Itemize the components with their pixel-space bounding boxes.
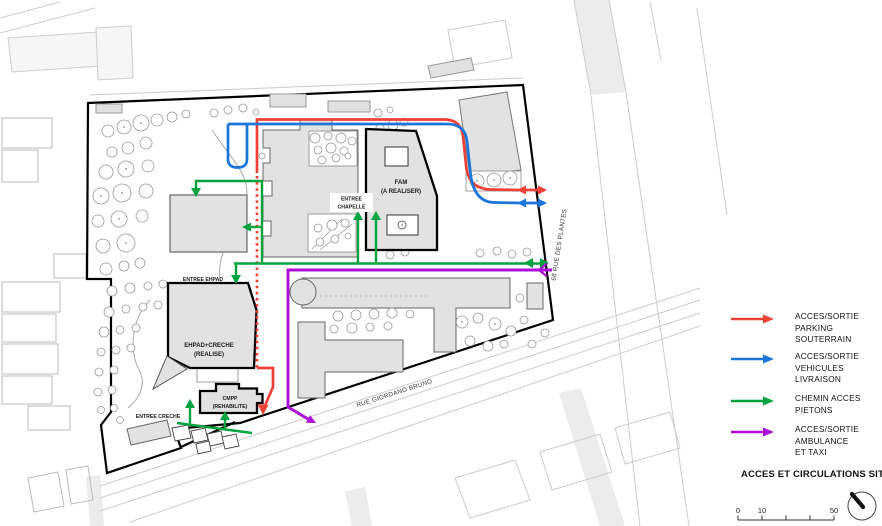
- site-plan-drawing: ENTREE CHAPELLE FAM (A REALISER) EHPAD+C…: [0, 0, 882, 526]
- svg-text:(REALISE): (REALISE): [194, 352, 224, 358]
- label-entree-ehpad: ENTREE EHPAD: [183, 277, 224, 283]
- svg-text:CHAPELLE: CHAPELLE: [338, 205, 366, 211]
- svg-text:(REHABILITE): (REHABILITE): [213, 404, 248, 410]
- street-label-plantes: 68 RUE DES PLANTES: [550, 208, 568, 281]
- label-entree-chapelle: ENTREE: [341, 197, 363, 203]
- label-cmpp: CMPP: [223, 396, 239, 402]
- site-plan-page: ENTREE CHAPELLE FAM (A REALISER) EHPAD+C…: [0, 0, 882, 526]
- svg-text:(A REALISER): (A REALISER): [381, 189, 421, 195]
- building-lawn: [170, 195, 247, 252]
- label-ehpad: EHPAD+CRECHE: [184, 343, 233, 349]
- label-fam: FAM: [395, 180, 408, 186]
- label-entree-creche: ENTREE CRECHE: [136, 414, 181, 420]
